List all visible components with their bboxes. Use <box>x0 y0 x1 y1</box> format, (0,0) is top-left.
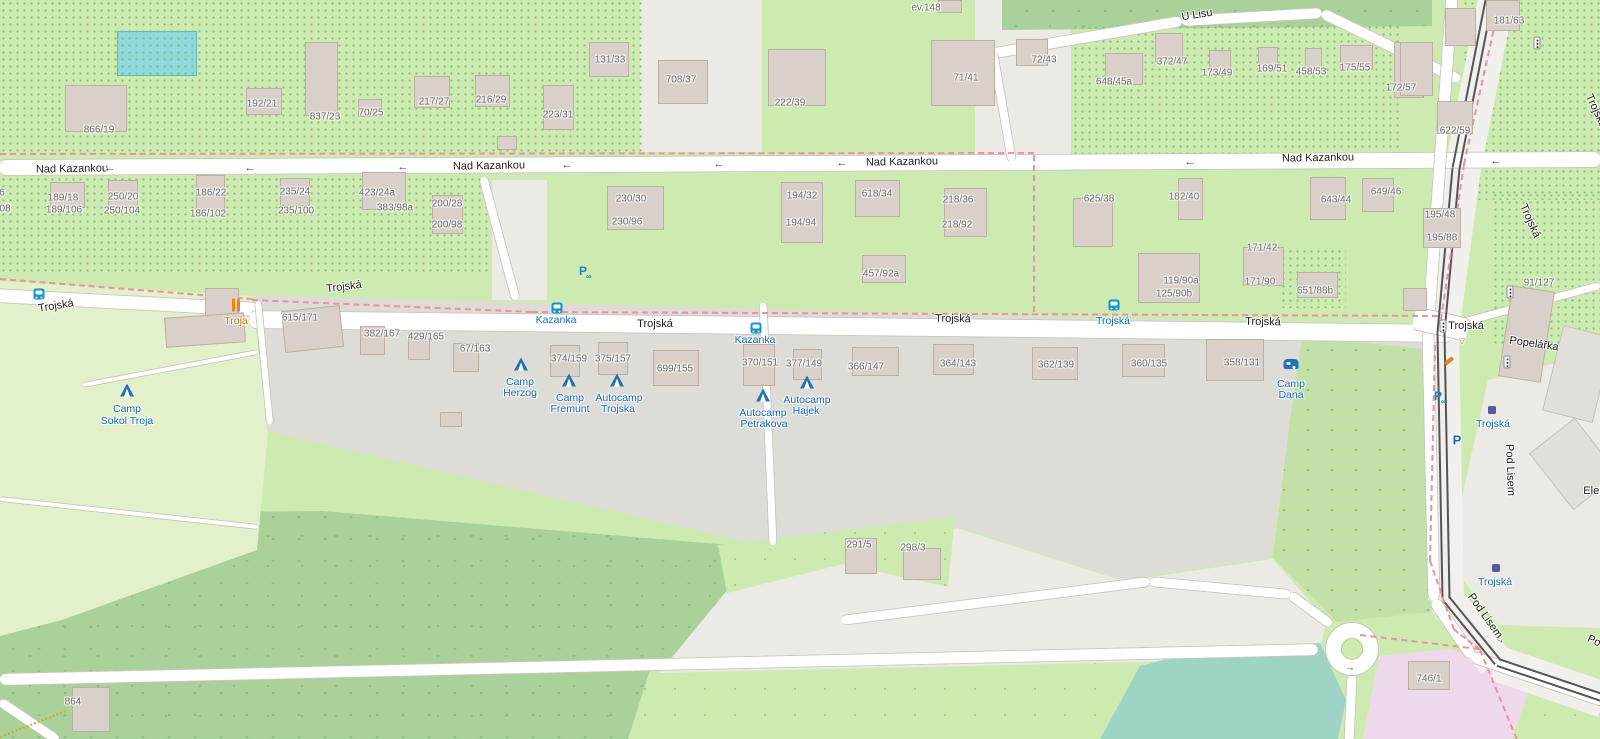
house-number-label: 125/90b <box>1156 289 1192 300</box>
street-name-label: Nad Kazankou <box>866 155 938 168</box>
house-number-label: 218/36 <box>943 195 974 206</box>
oneway-arrow-icon: ← <box>1185 156 1196 168</box>
house-number-label: 222/39 <box>775 98 806 109</box>
house-number-label: 216/29 <box>476 95 507 106</box>
house-number-label: 618/34 <box>862 189 893 200</box>
bicycle-wheels-icon: ∞ <box>586 272 592 281</box>
house-number-label: 837/23 <box>310 112 341 123</box>
house-number-label: 429/165 <box>408 332 444 343</box>
house-number-label: 375/157 <box>595 354 631 365</box>
house-number-label: 377/149 <box>786 359 822 370</box>
camp-name-label: Petrakova <box>740 418 787 430</box>
oneway-arrow-icon: → <box>1345 663 1355 674</box>
bicycle-parking-icon: P∞ <box>579 264 587 278</box>
house-number-label: 186/22 <box>196 188 227 199</box>
street-name-label: U Lisu <box>1181 7 1214 24</box>
house-number-label: 194/32 <box>787 191 818 202</box>
house-number-label: 250/104 <box>104 206 140 217</box>
house-number-label: 699/155 <box>657 364 693 375</box>
bus-stop-icon <box>34 289 45 300</box>
house-number-label: 230/30 <box>616 194 647 205</box>
house-number-label: 200/98 <box>432 220 463 231</box>
restaurant-icon <box>230 299 242 312</box>
house-number-label: 169/51 <box>1257 64 1288 75</box>
house-number-label: 457/92a <box>863 269 899 280</box>
house-number-label: 649/46 <box>1371 187 1402 198</box>
street-name-label: Trojská <box>1517 202 1542 239</box>
traffic-signal-icon <box>1507 286 1514 299</box>
house-number-label: 374/159 <box>551 354 587 365</box>
house-number-label: 360/135 <box>1131 359 1167 370</box>
camp-name-label: Sokol Troja <box>101 415 154 427</box>
oneway-arrow-icon: ← <box>562 159 573 171</box>
restaurant-name-label: Troja <box>224 315 248 327</box>
house-number-label: 186/102 <box>190 209 226 220</box>
house-number-label: 218/92 <box>942 220 973 231</box>
house-number-label: 458/53 <box>1296 67 1327 78</box>
house-number-label: 291/5 <box>846 540 871 551</box>
transit-stop-label: Trojská <box>1096 315 1130 327</box>
house-number-label: 364/143 <box>940 359 976 370</box>
house-number-label: 217/27 <box>419 97 450 108</box>
house-number-label: 171/90 <box>1245 277 1276 288</box>
camp-name-label: Trojska <box>601 403 635 415</box>
traffic-signal-icon <box>1440 320 1447 333</box>
house-number-label: 230/96 <box>612 217 643 228</box>
street-name-label: Trojská <box>1448 320 1484 332</box>
street-name-label: Trojská <box>1583 92 1600 129</box>
house-number-label: 195/48 <box>1425 210 1456 221</box>
house-number-label: 615/171 <box>282 313 318 324</box>
house-number-label: 131/33 <box>595 55 626 66</box>
house-number-label: 6 <box>0 188 5 199</box>
street-name-label: Pod Lisem <box>1465 591 1505 640</box>
oneway-arrow-icon: ← <box>245 162 256 174</box>
house-number-label: 173/49 <box>1202 68 1233 79</box>
camp-name-label: Hajek <box>793 405 820 417</box>
house-number-label: 171/42 <box>1247 243 1278 254</box>
street-name-label: Elek <box>1583 485 1600 497</box>
bus-stop-icon <box>552 303 563 314</box>
street-name-label: Trojská <box>935 313 971 326</box>
house-number-label: 643/44 <box>1321 195 1352 206</box>
house-number-label: 625/38 <box>1084 194 1115 205</box>
camp-name-label: Herzog <box>503 387 537 399</box>
house-number-label: 195/88 <box>1427 233 1458 244</box>
house-number-label: 72/43 <box>1031 55 1056 66</box>
map-canvas[interactable]: 866/19192/21837/2370/25217/27216/29223/3… <box>0 0 1600 739</box>
give-way-icon: ▽ <box>1459 337 1465 346</box>
house-number-label: 622/59 <box>1440 126 1471 137</box>
bicycle-parking-icon: P∞ <box>1434 389 1442 403</box>
house-number-label: 864 <box>65 697 82 708</box>
house-number-label: 119/90a <box>1163 276 1198 287</box>
house-number-label: 382/167 <box>364 329 400 340</box>
house-number-label: 194/94 <box>786 218 817 229</box>
house-number-label: 91/127 <box>1524 278 1555 289</box>
campsite-tent-icon <box>800 376 814 389</box>
transit-stop-label: Trojská <box>1478 576 1512 588</box>
house-number-label: ev.148 <box>911 3 940 14</box>
house-number-label: 08 <box>0 204 11 215</box>
street-name-label: Pod Lisem <box>1503 444 1517 496</box>
house-number-label: 71/41 <box>953 73 978 84</box>
house-number-label: 189/18 <box>48 193 79 204</box>
bus-stop-icon <box>751 323 762 334</box>
labels-layer: 866/19192/21837/2370/25217/27216/29223/3… <box>0 0 1600 739</box>
house-number-label: 370/151 <box>742 358 778 369</box>
house-number-label: 189/106 <box>46 205 82 216</box>
house-number-label: 223/31 <box>543 110 574 121</box>
campsite-tent-icon <box>562 374 576 387</box>
transit-stop-label: Kazanka <box>735 334 776 346</box>
street-name-label: Trojská <box>637 318 673 330</box>
oneway-arrow-icon: ← <box>714 158 725 170</box>
campsite-tent-icon <box>514 358 528 371</box>
house-number-label: 746/1 <box>1416 674 1441 685</box>
street-name-label: Trojská <box>1245 316 1281 329</box>
house-number-label: 866/19 <box>84 125 115 136</box>
tram-stop-icon <box>1488 406 1496 414</box>
house-number-label: 172/57 <box>1386 83 1417 94</box>
bicycle-wheels-icon: ∞ <box>1441 397 1447 406</box>
parking-icon: P <box>1453 433 1462 448</box>
house-number-label: 175/55 <box>1340 63 1371 74</box>
campsite-tent-icon <box>756 389 770 402</box>
house-number-label: 235/100 <box>278 206 314 217</box>
transit-stop-label: Kazanka <box>536 314 577 326</box>
street-name-label: Nad Kazankou <box>36 162 108 175</box>
house-number-label: 366/147 <box>848 362 884 373</box>
caravan-site-icon <box>1284 359 1299 369</box>
camp-name-label: Camp <box>113 403 141 415</box>
house-number-label: 423/24a <box>359 188 395 199</box>
campsite-tent-icon <box>610 374 624 387</box>
camp-name-label: Dana <box>1278 389 1303 401</box>
campsite-tent-icon <box>120 384 134 397</box>
house-number-label: 235/24 <box>280 187 311 198</box>
oneway-arrow-icon: ← <box>1491 155 1502 167</box>
oneway-arrow-icon: ← <box>105 162 116 174</box>
house-number-label: 67/163 <box>460 344 491 355</box>
tram-stop-icon <box>1492 564 1500 572</box>
street-name-label: Po <box>1585 633 1600 650</box>
oneway-arrow-icon: ← <box>837 157 848 169</box>
street-name-label: Trojská <box>37 297 74 314</box>
oneway-arrow-icon: ← <box>398 161 409 173</box>
transit-stop-label: Trojská <box>1476 418 1510 430</box>
house-number-label: 250/20 <box>108 192 139 203</box>
house-number-label: 200/28 <box>432 199 463 210</box>
house-number-label: 362/139 <box>1038 360 1074 371</box>
house-number-label: 182/40 <box>1169 192 1200 203</box>
house-number-label: 70/25 <box>358 108 383 119</box>
house-number-label: 708/37 <box>666 75 697 86</box>
traffic-signal-icon <box>1534 37 1541 50</box>
house-number-label: 372/47 <box>1157 57 1188 68</box>
house-number-label: 298/3 <box>900 543 925 554</box>
bus-stop-icon <box>1109 300 1120 311</box>
house-number-label: 651/88b <box>1297 286 1333 297</box>
street-name-label: Nad Kazankou <box>1282 151 1354 164</box>
house-number-label: 648/45a <box>1096 77 1132 88</box>
house-number-label: 192/21 <box>247 99 278 110</box>
house-number-label: 383/98a <box>377 203 413 214</box>
house-number-label: 181/63 <box>1494 16 1525 27</box>
street-name-label: Nad Kazankou <box>453 159 525 172</box>
house-number-label: 358/131 <box>1224 358 1260 369</box>
camp-name-label: Fremunt <box>550 403 589 415</box>
traffic-signal-icon <box>1504 356 1511 369</box>
street-name-label: Popelářka <box>1509 335 1560 354</box>
bench-icon <box>1444 356 1454 365</box>
street-name-label: Trojská <box>326 279 363 295</box>
